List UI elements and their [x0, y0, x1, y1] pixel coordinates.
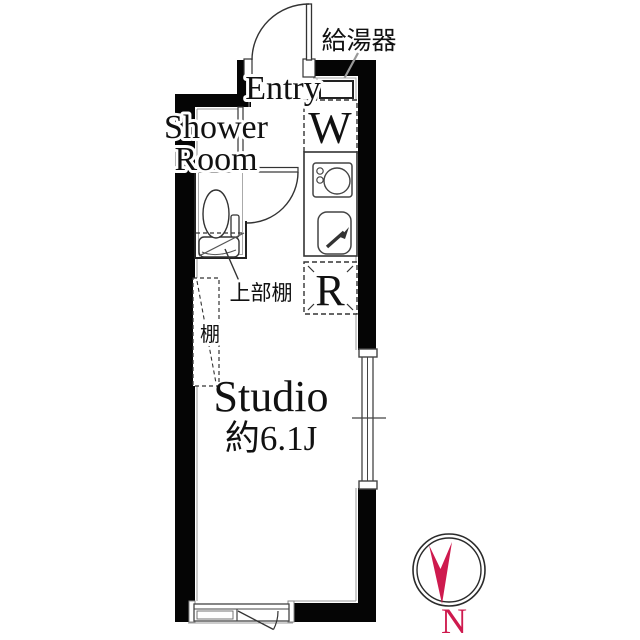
washer-letter: W — [308, 102, 352, 153]
water-heater-box — [320, 81, 353, 98]
shelf-label: 棚 — [200, 323, 220, 346]
right-window-cap-bottom — [359, 481, 377, 489]
bottom-window-fixed-pane — [197, 611, 233, 619]
right-window-cap-top — [359, 349, 377, 357]
sink-icon — [318, 212, 351, 254]
studio-area-label: 約6.1J — [225, 419, 317, 458]
compass-north-label: N — [441, 601, 467, 640]
water-heater-label: 給湯器 — [321, 27, 396, 55]
entry-door-leaf — [307, 4, 312, 60]
upper-shelf-label: 上部棚 — [230, 281, 293, 305]
refrigerator-letter: R — [315, 266, 345, 315]
kitchen-counter — [304, 152, 357, 256]
washer-area: W — [304, 100, 357, 153]
entry-label: Entry — [245, 70, 321, 107]
wall-right-upper — [358, 60, 376, 350]
shower-room-label-line2: Room — [174, 141, 257, 178]
floor-plan-page: W R — [0, 0, 640, 640]
studio-label: Studio — [214, 372, 329, 421]
refrigerator-area: R — [304, 262, 357, 315]
floor-plan-svg: W R — [0, 0, 640, 640]
wall-right-lower — [358, 488, 376, 622]
